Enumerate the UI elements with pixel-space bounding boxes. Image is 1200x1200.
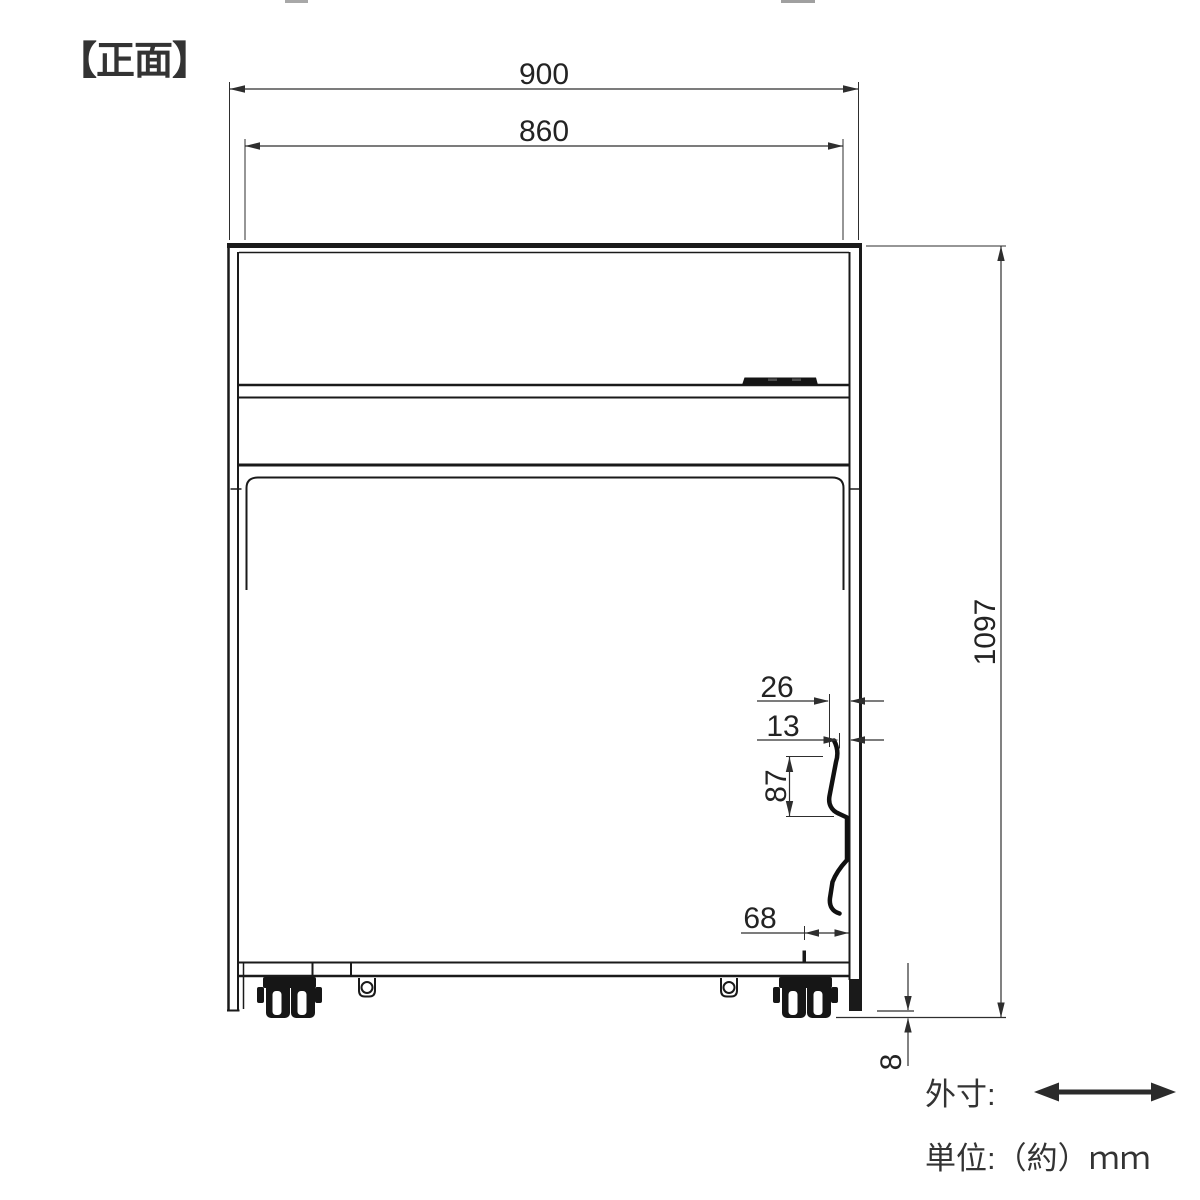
double-arrow-icon	[1034, 1083, 1176, 1102]
bottom-brackets	[359, 978, 737, 997]
dim-13-label: 13	[766, 710, 799, 743]
dim-1097-label: 1097	[969, 599, 1002, 666]
legend: 外寸: 単位:（約）ｍｍ	[925, 1077, 1176, 1176]
handle	[742, 378, 818, 386]
view-title: 【正面】	[58, 40, 210, 83]
dim-87-label: 87	[760, 769, 793, 802]
lower-front-panel	[247, 478, 844, 591]
top-crop-artifacts	[285, 0, 815, 3]
cabinet-outline	[227, 246, 862, 1012]
dimension-overall-width: 900	[230, 58, 859, 240]
unit-label: 単位:（約）ｍｍ	[925, 1141, 1151, 1176]
dimension-inner-width: 860	[245, 115, 843, 240]
screw-hole	[724, 982, 735, 993]
dim-900-label: 900	[519, 58, 569, 91]
dim-8-label: 8	[875, 1054, 908, 1071]
front-view-diagram: 【正面】	[0, 0, 1200, 1200]
dimension-hook-length: 87	[760, 757, 834, 817]
outer-dim-label: 外寸:	[925, 1077, 996, 1112]
dim-860-label: 860	[519, 115, 569, 148]
left-caster	[257, 977, 322, 1018]
right-caster	[773, 977, 838, 1018]
wire-hook-clip	[803, 741, 848, 963]
drawing-canvas: 【正面】	[0, 0, 1200, 1200]
dim-26-label: 26	[760, 671, 793, 704]
bottom-pin	[803, 951, 807, 963]
dimension-hook-tip-offset: 13	[757, 710, 884, 749]
dim-68-label: 68	[743, 902, 776, 935]
screw-hole	[362, 982, 373, 993]
dimension-floor-clearance: 8	[875, 963, 914, 1070]
right-foot	[849, 979, 862, 1011]
